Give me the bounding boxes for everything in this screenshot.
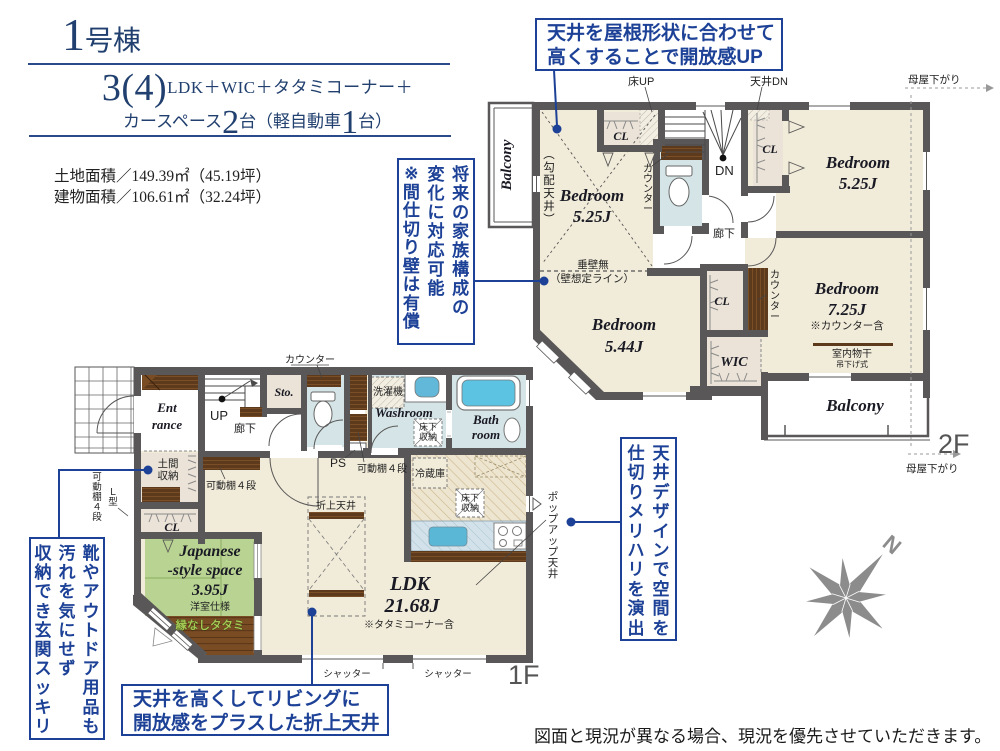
svg-text:Bedroom: Bedroom <box>591 315 656 334</box>
svg-text:Balcony: Balcony <box>499 139 515 191</box>
svg-text:廊下: 廊下 <box>234 421 256 435</box>
svg-text:床下: 床下 <box>419 422 437 432</box>
svg-text:5.25J: 5.25J <box>839 174 878 193</box>
svg-text:冷蔵庫: 冷蔵庫 <box>415 467 445 480</box>
svg-text:折上天井: 折上天井 <box>316 499 356 512</box>
svg-text:CL: CL <box>714 294 729 308</box>
svg-text:※カウンター含: ※カウンター含 <box>810 320 884 332</box>
svg-text:rance: rance <box>152 417 183 432</box>
svg-text:母屋下がり: 母屋下がり <box>906 462 959 475</box>
svg-text:LDK: LDK <box>389 573 432 595</box>
svg-text:天井DN: 天井DN <box>750 74 788 88</box>
svg-text:室内物干: 室内物干 <box>832 347 872 360</box>
svg-text:母屋下がり: 母屋下がり <box>908 73 961 86</box>
svg-text:Balcony: Balcony <box>825 396 884 415</box>
svg-text:room: room <box>472 427 500 442</box>
svg-text:可動棚４段: 可動棚４段 <box>206 479 256 492</box>
svg-text:Bedroom: Bedroom <box>814 279 879 298</box>
svg-text:Japanese: Japanese <box>178 543 240 560</box>
svg-text:3.95J: 3.95J <box>191 582 229 599</box>
svg-text:Bath: Bath <box>472 412 499 427</box>
svg-text:シャッター: シャッター <box>323 669 371 680</box>
svg-text:シャッター: シャッター <box>424 669 472 680</box>
svg-text:垂壁無: 垂壁無 <box>577 258 609 271</box>
svg-text:床UP: 床UP <box>628 75 654 88</box>
svg-text:※タタミコーナー含: ※タタミコーナー含 <box>364 619 454 631</box>
svg-text:Washroom: Washroom <box>375 405 433 420</box>
svg-text:カウンター: カウンター <box>643 163 653 215</box>
svg-text:洗濯機: 洗濯機 <box>373 385 403 398</box>
svg-text:床下: 床下 <box>461 493 479 503</box>
svg-text:吊下げ式: 吊下げ式 <box>836 359 868 369</box>
svg-text:土間: 土間 <box>158 457 179 470</box>
svg-text:CL: CL <box>762 142 777 156</box>
svg-text:収納: 収納 <box>461 502 479 513</box>
svg-text:（壁想定ライン）: （壁想定ライン） <box>550 272 634 285</box>
svg-text:-style space: -style space <box>167 562 242 579</box>
svg-text:5.25J: 5.25J <box>573 207 612 226</box>
svg-text:CL: CL <box>164 520 179 534</box>
svg-text:Bedroom: Bedroom <box>825 153 890 172</box>
svg-text:Ｌ型: Ｌ型 <box>108 487 118 508</box>
svg-text:可動棚４段: 可動棚４段 <box>357 462 407 475</box>
svg-text:収納: 収納 <box>419 431 437 442</box>
svg-text:洋室仕様: 洋室仕様 <box>190 600 230 613</box>
svg-text:廊下: 廊下 <box>713 226 735 240</box>
svg-text:Bedroom: Bedroom <box>559 186 624 205</box>
svg-text:縁なしタタミ: 縁なしタタミ <box>175 618 245 632</box>
svg-text:カウンター: カウンター <box>770 269 780 323</box>
svg-text:ポップアップ天井: ポップアップ天井 <box>548 491 559 580</box>
svg-text:5.44J: 5.44J <box>605 337 644 356</box>
svg-text:1F: 1F <box>508 660 540 690</box>
svg-text:UP: UP <box>210 408 228 423</box>
svg-text:CL: CL <box>613 129 628 143</box>
svg-text:収納: 収納 <box>158 469 179 482</box>
svg-text:DN: DN <box>715 163 734 178</box>
svg-text:カウンター: カウンター <box>285 354 335 366</box>
svg-text:Sto.: Sto. <box>274 385 293 399</box>
svg-text:7.25J: 7.25J <box>828 300 867 319</box>
svg-text:PS: PS <box>330 456 346 470</box>
svg-text:Ent: Ent <box>156 400 177 415</box>
svg-text:21.68J: 21.68J <box>384 595 441 617</box>
svg-text:︵勾配天井︶: ︵勾配天井︶ <box>543 149 555 226</box>
svg-text:2F: 2F <box>938 429 970 459</box>
svg-text:可動棚４段: 可動棚４段 <box>92 472 102 523</box>
svg-text:WIC: WIC <box>720 355 748 370</box>
